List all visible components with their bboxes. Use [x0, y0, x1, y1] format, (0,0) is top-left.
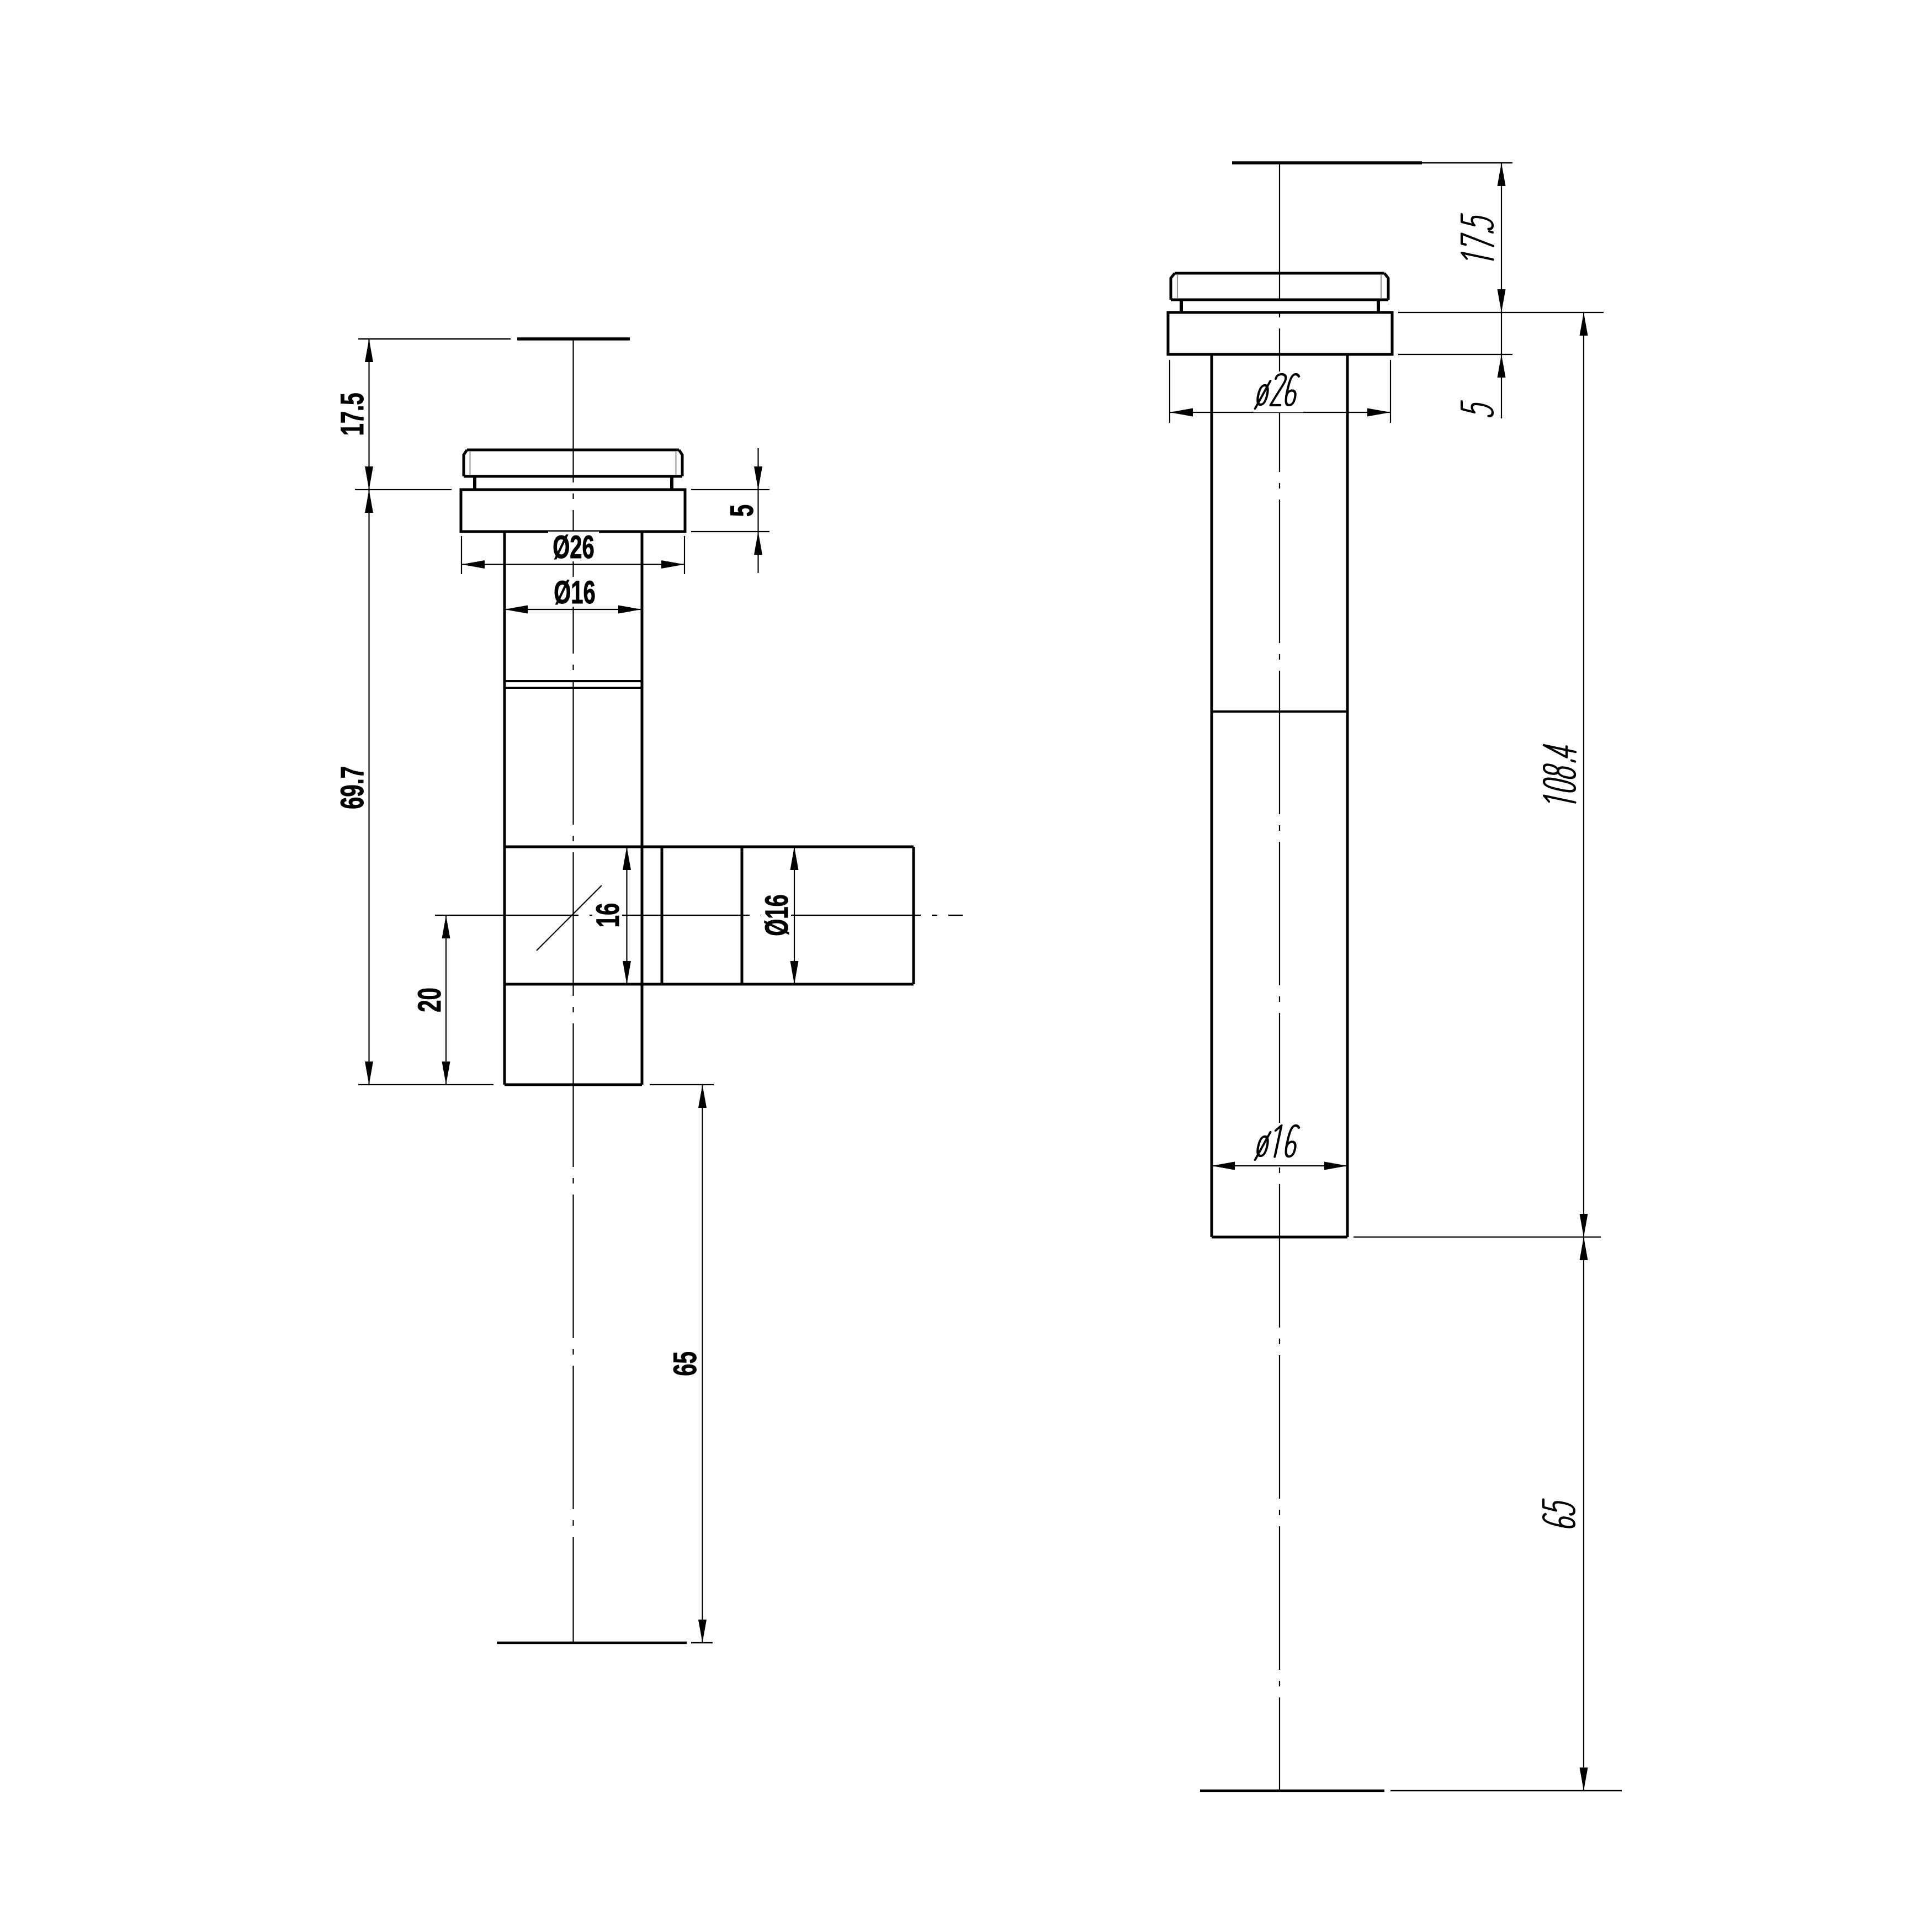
svg-text:Ø26: Ø26: [553, 529, 595, 565]
svg-text:65: 65: [667, 1351, 703, 1376]
svg-text:69.7: 69.7: [335, 766, 370, 809]
svg-text:17.5: 17.5: [335, 393, 370, 436]
svg-text:5: 5: [724, 505, 760, 517]
svg-text:Ø16: Ø16: [554, 575, 596, 611]
svg-text:Ø16: Ø16: [759, 894, 795, 936]
svg-text:20: 20: [412, 988, 448, 1012]
svg-text:16: 16: [590, 903, 626, 928]
